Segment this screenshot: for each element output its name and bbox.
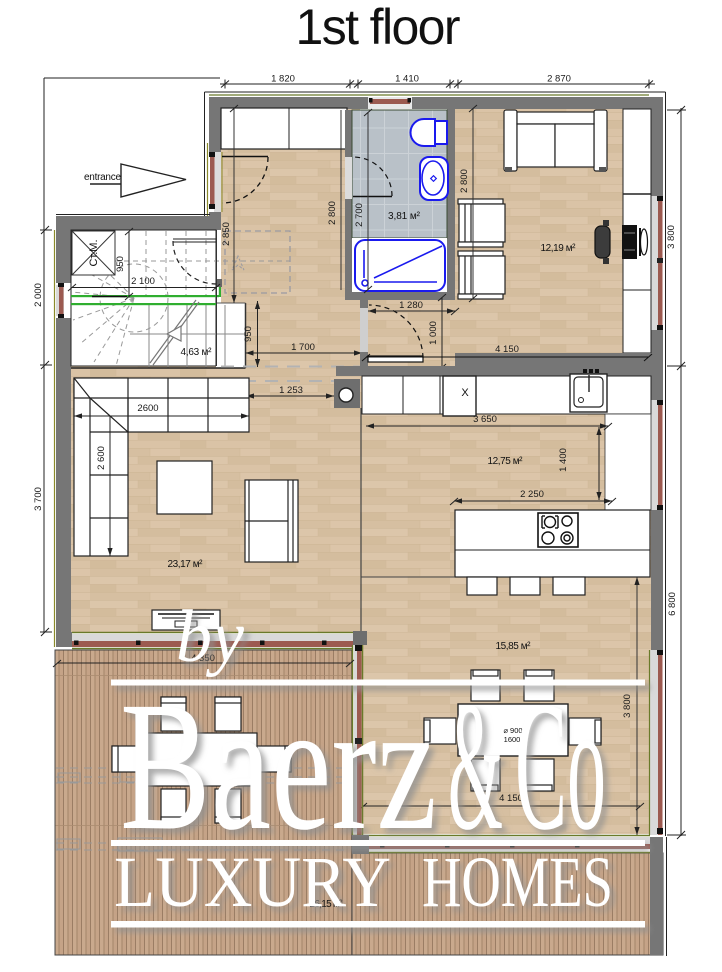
svg-text:LUXURY: LUXURY [114, 842, 391, 922]
svg-text:2 100: 2 100 [131, 276, 155, 287]
svg-text:2 700: 2 700 [354, 203, 365, 227]
svg-text:23,17 м²: 23,17 м² [168, 559, 204, 570]
svg-text:2 800: 2 800 [459, 169, 470, 193]
svg-text:2 000: 2 000 [33, 283, 44, 307]
svg-text:6 800: 6 800 [667, 592, 678, 616]
svg-text:1st floor: 1st floor [296, 0, 461, 55]
svg-text:3 650: 3 650 [473, 414, 497, 425]
svg-text:Baerz: Baerz [120, 664, 437, 869]
svg-text:1 700: 1 700 [291, 342, 315, 353]
svg-text:2 850: 2 850 [221, 222, 232, 246]
svg-text:2 250: 2 250 [520, 489, 544, 500]
svg-text:entrance: entrance [84, 172, 121, 183]
svg-text:1 280: 1 280 [399, 300, 423, 311]
svg-text:3 700: 3 700 [33, 487, 44, 511]
svg-text:12,19 м²: 12,19 м² [541, 243, 577, 254]
svg-text:2600: 2600 [137, 403, 158, 414]
svg-text:3 800: 3 800 [622, 694, 633, 718]
svg-text:Ст.М.: Ст.М. [88, 239, 100, 266]
svg-text:X: X [461, 387, 469, 399]
svg-text:12,75 м²: 12,75 м² [488, 456, 524, 467]
svg-text:1 000: 1 000 [428, 321, 439, 345]
svg-text:&: & [448, 664, 503, 869]
svg-text:Co: Co [515, 664, 606, 869]
svg-text:3 800: 3 800 [666, 225, 677, 249]
svg-text:3,81 м²: 3,81 м² [388, 211, 421, 222]
svg-text:4 150: 4 150 [495, 344, 519, 355]
svg-text:950: 950 [243, 326, 254, 342]
svg-text:1 410: 1 410 [395, 74, 419, 85]
svg-text:2 870: 2 870 [547, 74, 571, 85]
svg-text:HOMES: HOMES [422, 842, 613, 922]
svg-text:950: 950 [115, 256, 126, 272]
svg-text:1 400: 1 400 [558, 448, 569, 472]
svg-text:1 253: 1 253 [279, 385, 303, 396]
svg-text:1 820: 1 820 [271, 74, 295, 85]
svg-text:2 800: 2 800 [327, 201, 338, 225]
svg-text:4,63 м²: 4,63 м² [181, 347, 213, 358]
svg-text:15,85 м²: 15,85 м² [496, 641, 532, 652]
svg-text:2 600: 2 600 [96, 446, 107, 470]
